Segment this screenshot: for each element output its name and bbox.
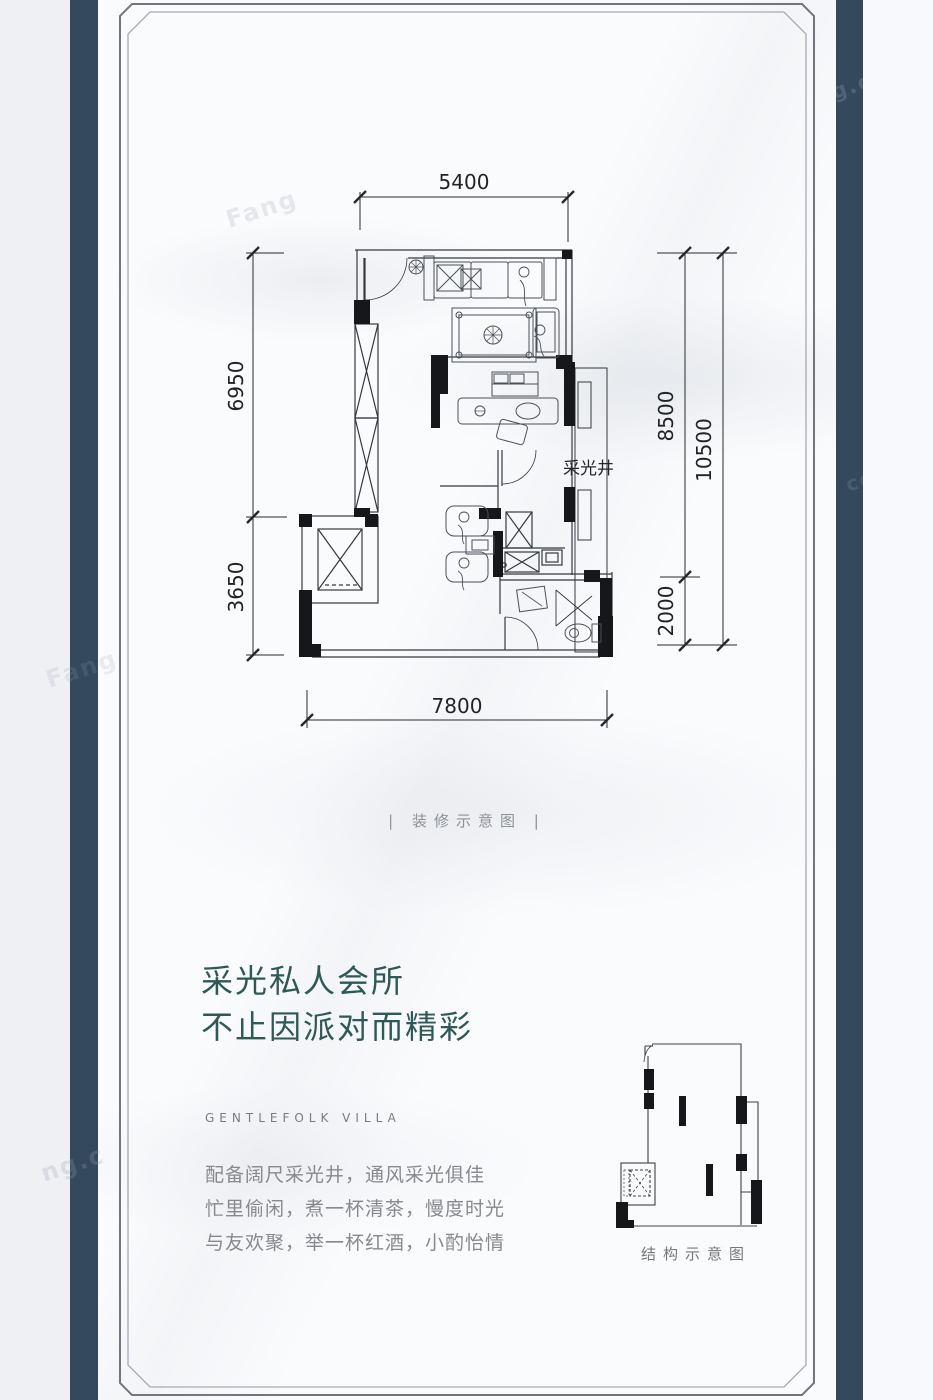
structure-plan-caption: 结构示意图 [641, 1243, 751, 1264]
ceiling-fan-icon [409, 260, 423, 274]
dim-right-outer: 10500 [692, 418, 716, 482]
bathroom-fixtures [517, 586, 601, 642]
body-line: 与友欢聚，举一杯红酒，小酌怡情 [205, 1233, 505, 1253]
brand-logo-swatch [205, 1087, 246, 1098]
page: Fang g.com ng.c com Fang [0, 0, 933, 1400]
structure-wall-fills [616, 1069, 762, 1228]
headline-line1: 采光私人会所 [201, 958, 473, 1004]
light-well-label: 采光井 [563, 459, 614, 479]
body-copy: 配备阔尺采光井，通风采光俱佳 忙里偷闲，煮一杯清茶，慢度时光 与友欢聚，举一杯红… [205, 1165, 505, 1267]
dim-right-inner-lower: 2000 [654, 586, 678, 637]
body-line: 忙里偷闲，煮一杯清茶，慢度时光 [205, 1199, 505, 1219]
structure-walls [621, 1044, 758, 1226]
headline-line2: 不止因派对而精彩 [201, 1004, 473, 1050]
dim-left-upper: 6950 [224, 361, 248, 412]
floor-plan: 5400 6950 3650 8500 2000 10500 7800 [224, 170, 737, 728]
body-line: 配备阔尺采光井，通风采光俱佳 [205, 1165, 505, 1185]
decor-plan-caption: | 装修示意图 | [98, 810, 836, 831]
walls [299, 250, 612, 657]
sofa [424, 256, 556, 300]
armchair [533, 308, 559, 358]
dim-right-inner-upper: 8500 [654, 391, 678, 442]
structure-plan [616, 1044, 762, 1228]
rug [452, 308, 536, 362]
dimension-labels: 5400 6950 3650 8500 2000 10500 7800 [224, 170, 716, 718]
dim-bottom: 7800 [432, 694, 483, 718]
desk [458, 398, 558, 445]
bed [492, 372, 538, 396]
dim-top: 5400 [439, 170, 490, 194]
brand-logo-text: GENTLEFOLK VILLA [205, 1111, 401, 1125]
dim-left-lower: 3650 [224, 562, 248, 613]
headline: 采光私人会所 不止因派对而精彩 [201, 958, 473, 1050]
